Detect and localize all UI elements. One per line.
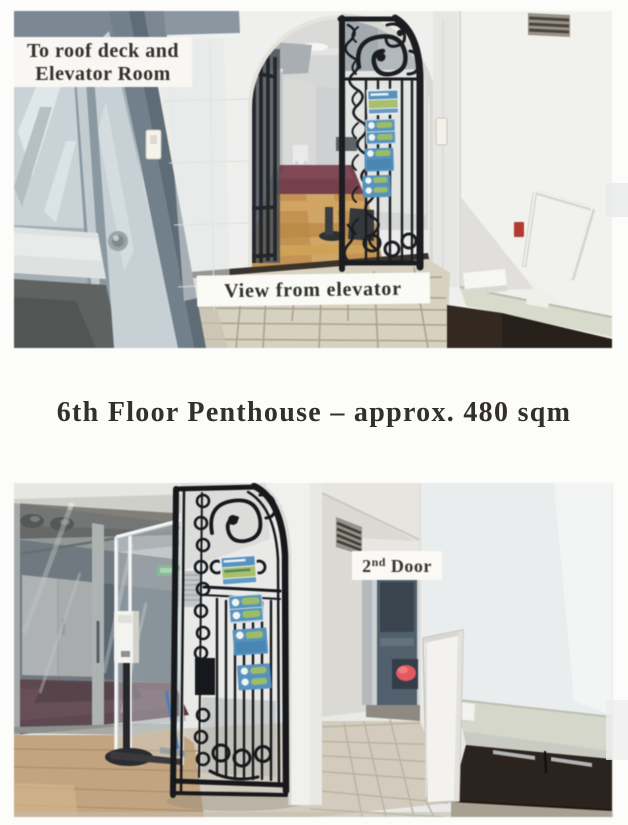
svg-text:To roof deck and: To roof deck and xyxy=(27,40,179,62)
svg-text:View from elevator: View from elevator xyxy=(224,278,402,302)
svg-text:Elevator Room: Elevator Room xyxy=(35,63,171,85)
